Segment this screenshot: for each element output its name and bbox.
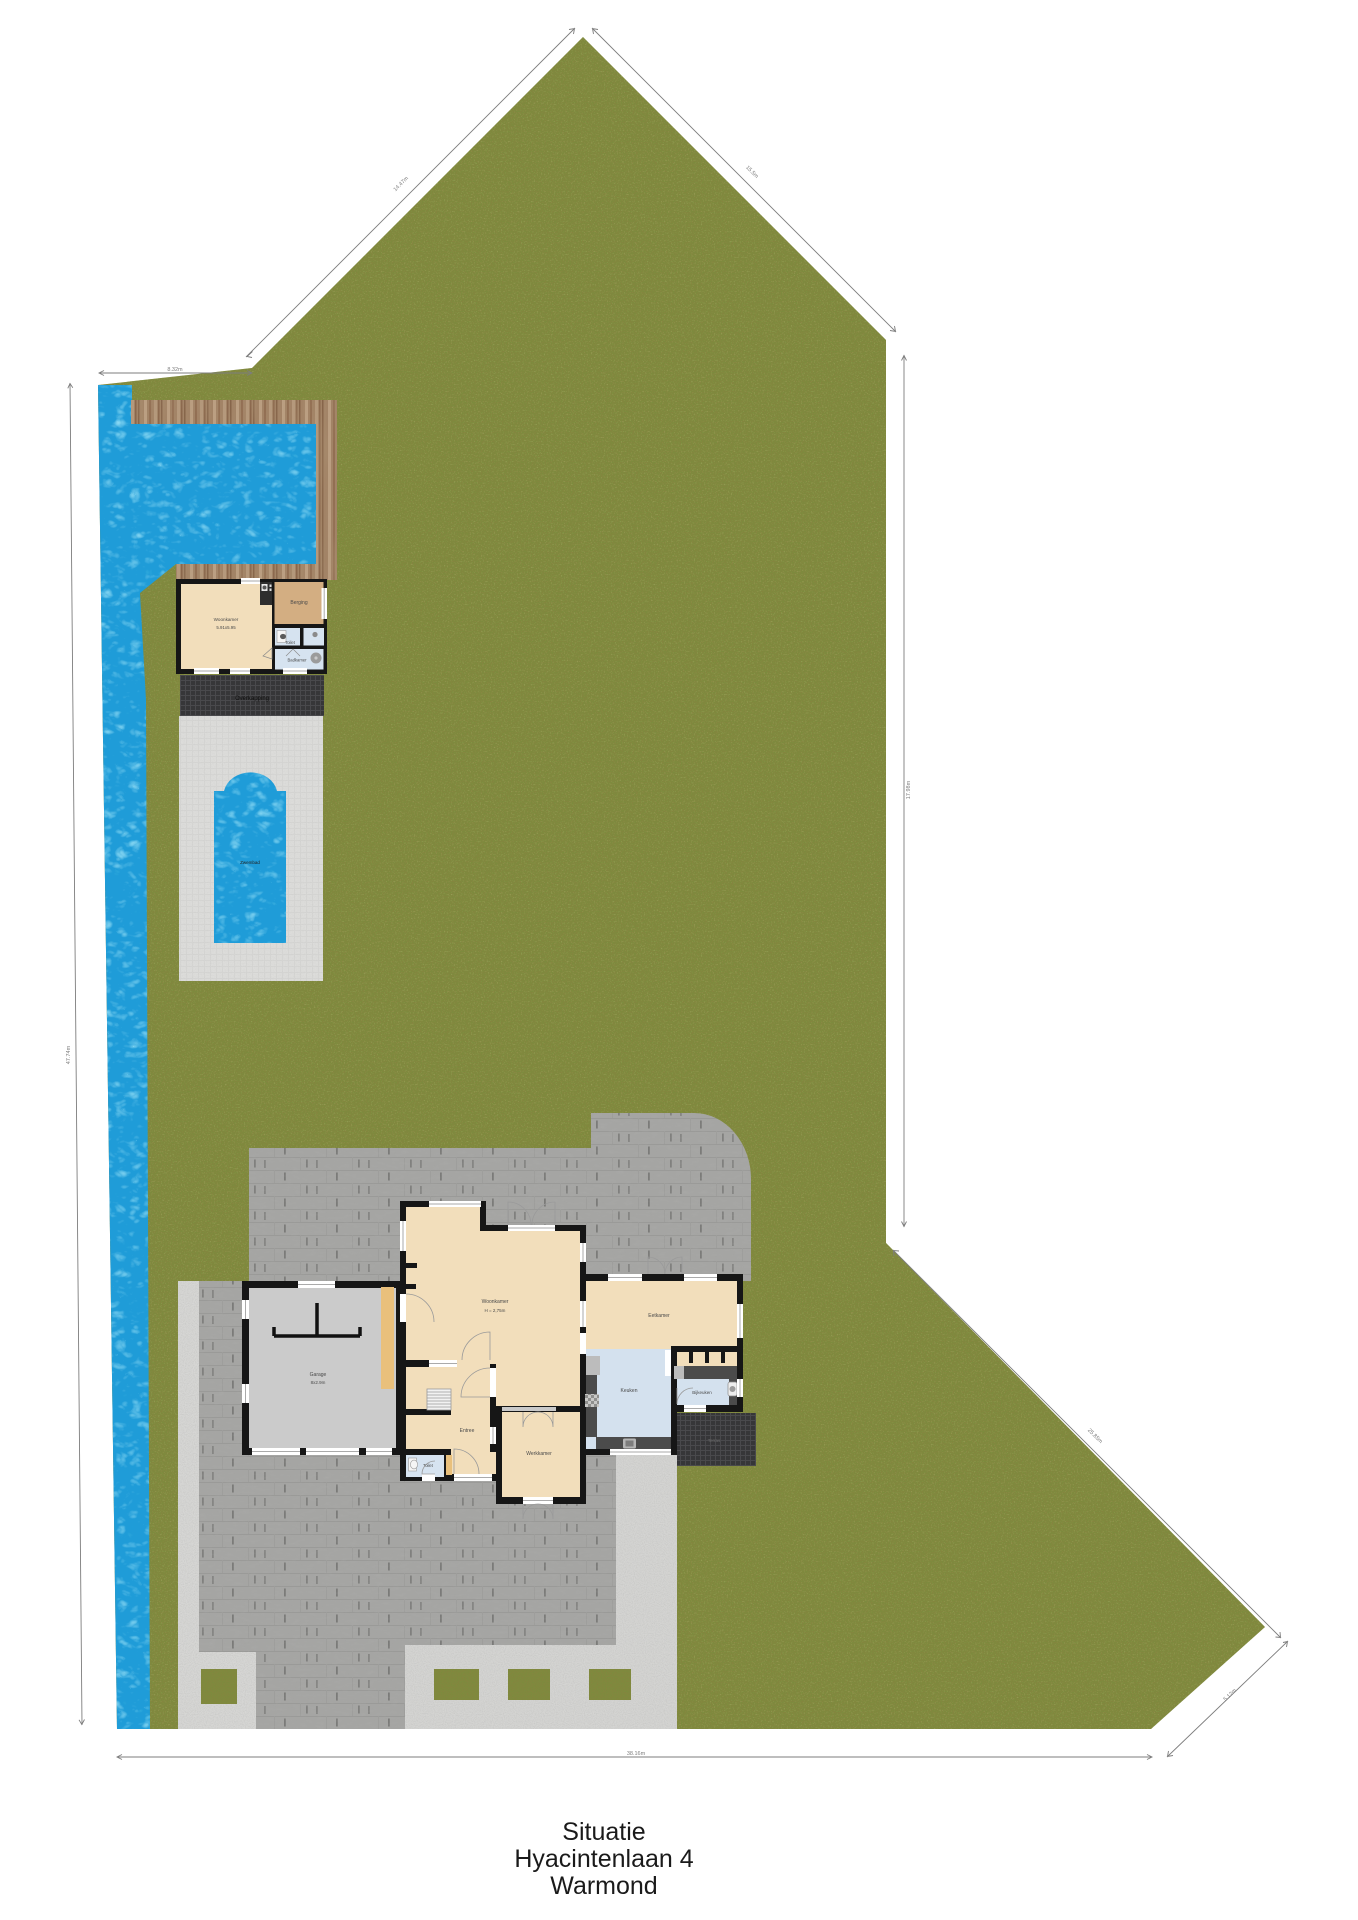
svg-text:Werkkamer: Werkkamer: [526, 1451, 552, 1457]
svg-text:Entree: Entree: [460, 1428, 475, 1434]
svg-text:15.5m: 15.5m: [744, 165, 759, 180]
svg-text:5.12m: 5.12m: [1223, 1688, 1239, 1703]
svg-text:H = 2,75m: H = 2,75m: [485, 1308, 506, 1313]
svg-text:Bijkeuken: Bijkeuken: [692, 1390, 712, 1395]
svg-text:Terras: Terras: [708, 1438, 721, 1443]
svg-text:Hyacintenlaan 4: Hyacintenlaan 4: [514, 1845, 693, 1873]
svg-text:25.85m: 25.85m: [1086, 1428, 1104, 1446]
svg-text:Toilet: Toilet: [285, 640, 296, 645]
svg-text:17.98m: 17.98m: [906, 780, 912, 799]
svg-text:Eetkamer: Eetkamer: [648, 1313, 670, 1319]
svg-text:Zwembad: Zwembad: [240, 860, 260, 865]
svg-text:Warmond: Warmond: [550, 1872, 657, 1900]
svg-text:38.16m: 38.16m: [627, 1751, 646, 1757]
svg-text:Overkapping: Overkapping: [235, 696, 269, 702]
svg-text:Woonkamer: Woonkamer: [214, 617, 239, 622]
svg-text:Situatie: Situatie: [562, 1818, 645, 1846]
svg-text:8.32m: 8.32m: [167, 367, 183, 373]
svg-text:5.91x5.95: 5.91x5.95: [216, 625, 236, 630]
svg-text:Woonkamer: Woonkamer: [482, 1299, 509, 1305]
svg-text:Keuken: Keuken: [621, 1388, 638, 1394]
svg-text:Berging: Berging: [290, 600, 307, 606]
svg-text:Garage: Garage: [310, 1372, 327, 1378]
svg-text:Badkamer: Badkamer: [287, 658, 307, 663]
svg-text:47.74m: 47.74m: [66, 1045, 72, 1064]
svg-text:8x2.9m: 8x2.9m: [311, 1380, 326, 1385]
svg-text:14.47m: 14.47m: [393, 175, 411, 193]
